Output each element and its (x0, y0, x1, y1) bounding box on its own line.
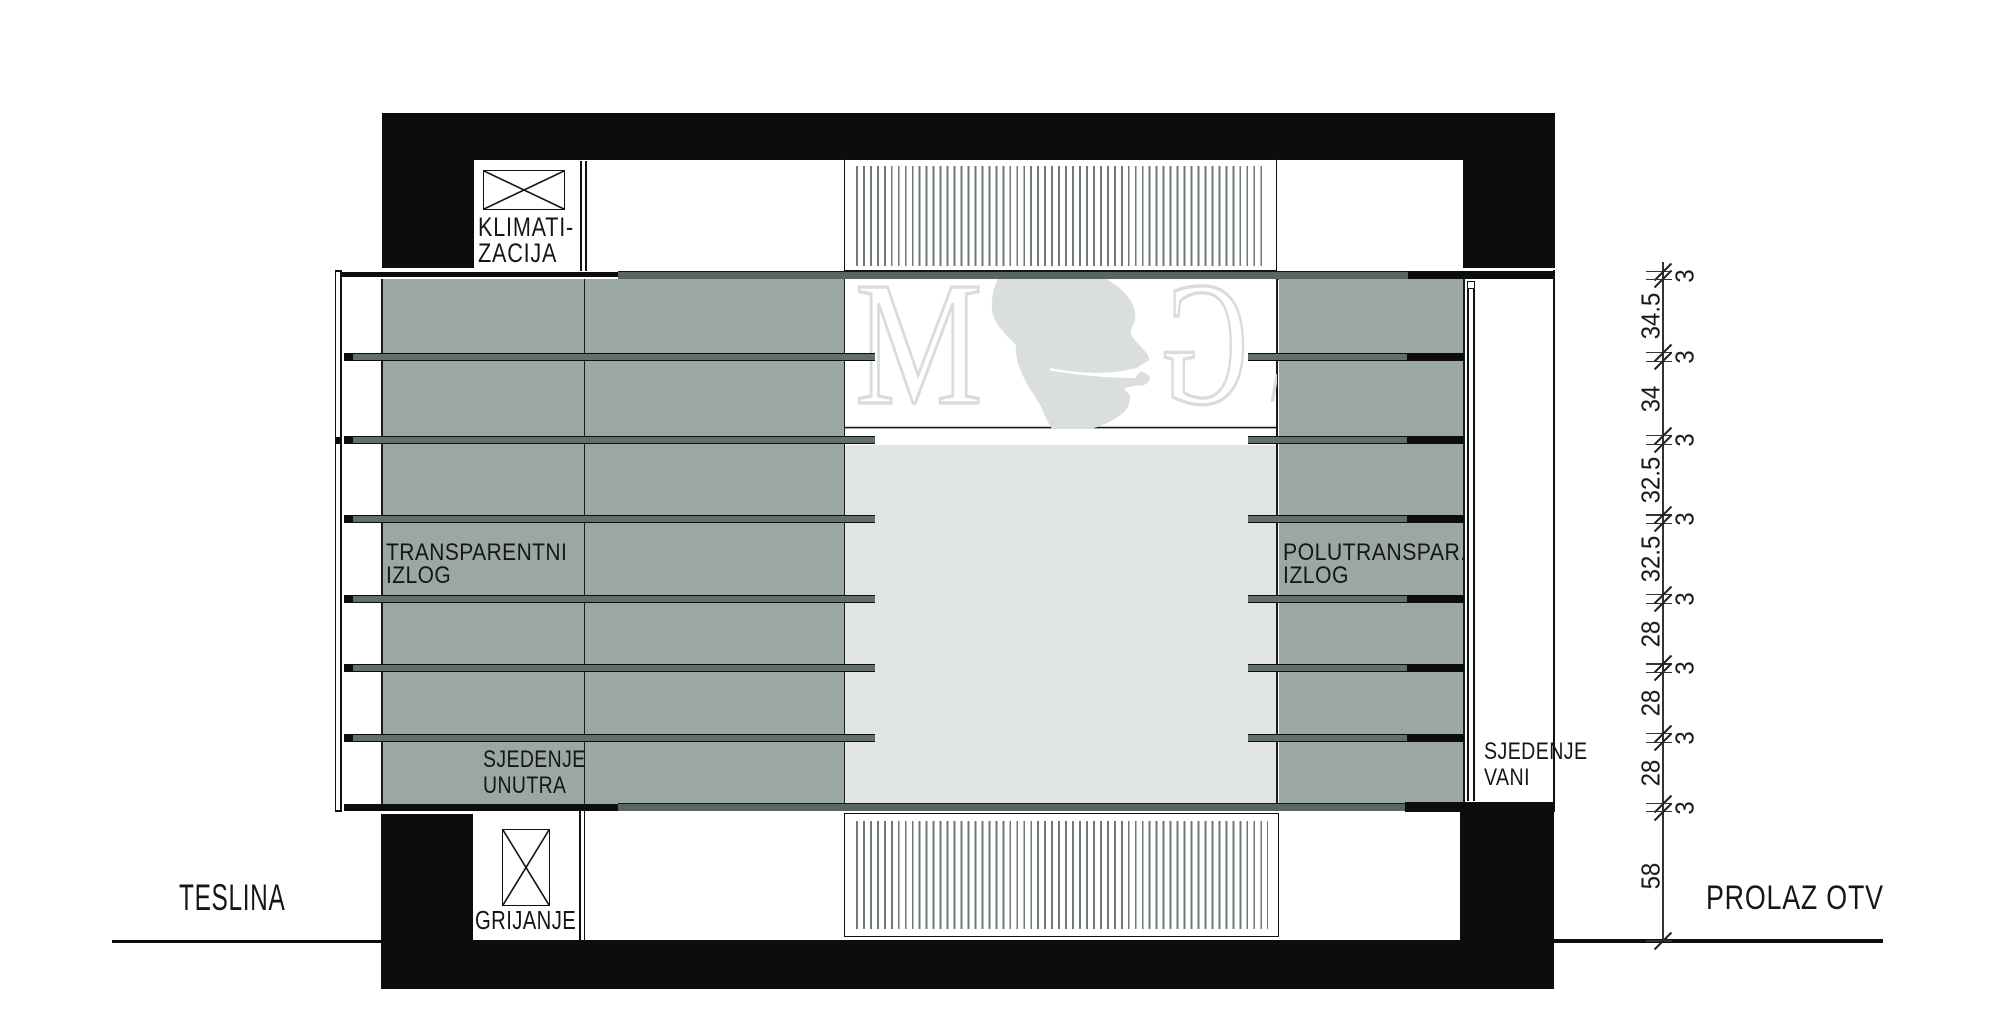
svg-text:G: G (1161, 279, 1248, 429)
